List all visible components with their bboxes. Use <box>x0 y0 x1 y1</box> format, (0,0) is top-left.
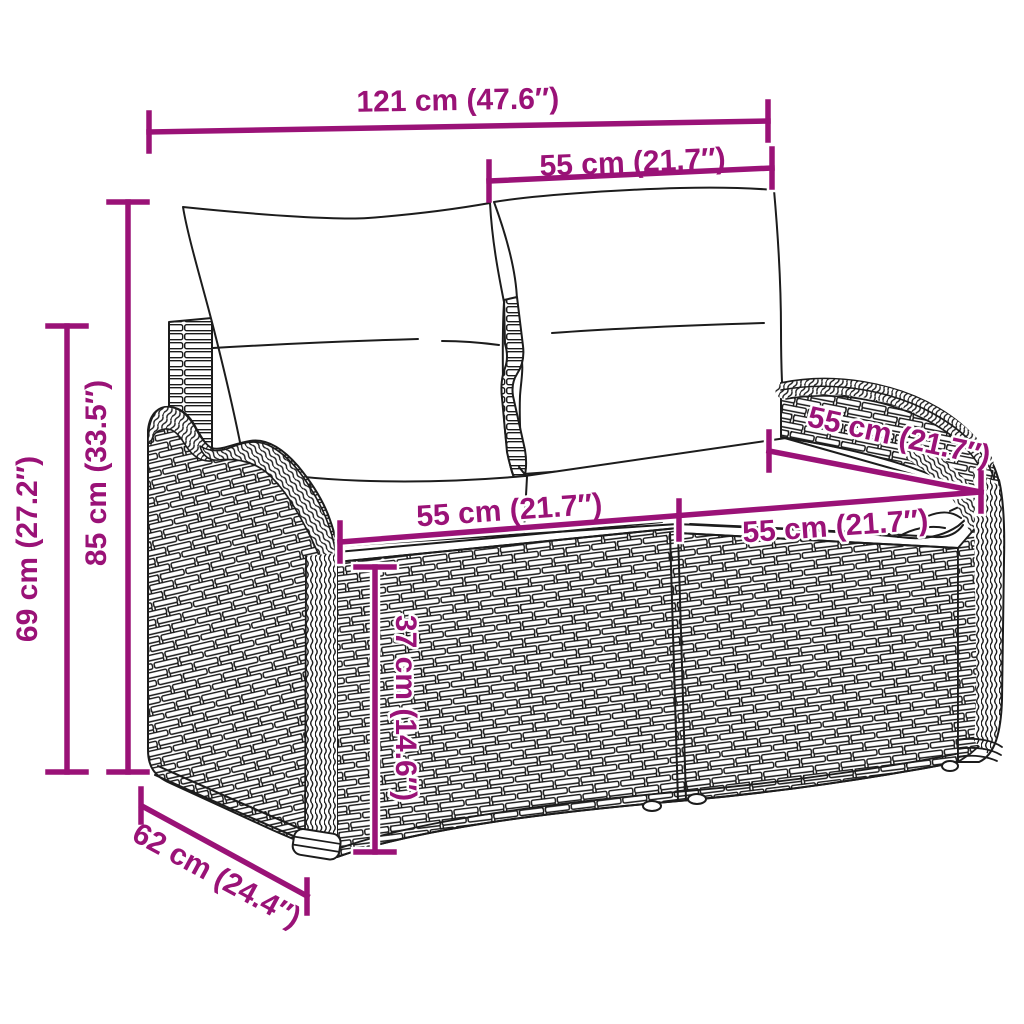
svg-text:121 cm (47.6″): 121 cm (47.6″) <box>356 82 559 119</box>
svg-text:85 cm (33.5″): 85 cm (33.5″) <box>80 380 113 566</box>
svg-text:37 cm (14.6″): 37 cm (14.6″) <box>389 615 422 801</box>
svg-text:69 cm (27.2″): 69 cm (27.2″) <box>11 456 44 642</box>
